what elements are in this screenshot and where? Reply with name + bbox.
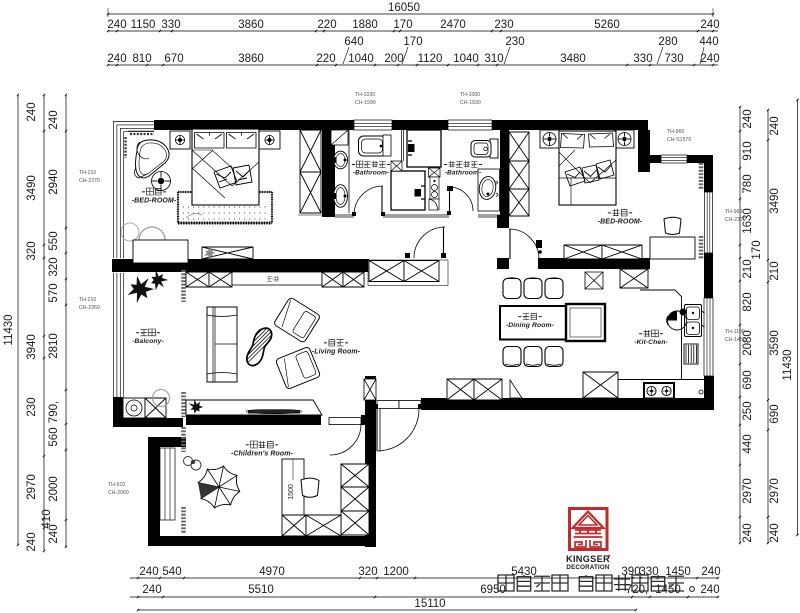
svg-text:1040: 1040 [348, 53, 374, 65]
svg-text:2970: 2970 [26, 474, 38, 500]
svg-text:330: 330 [161, 19, 180, 31]
svg-text:640: 640 [344, 36, 363, 48]
svg-text:440: 440 [742, 434, 754, 453]
svg-text:-Children's Room-: -Children's Room- [231, 451, 294, 458]
svg-text:310: 310 [484, 53, 503, 65]
svg-text:540: 540 [162, 566, 181, 578]
svg-text:16050: 16050 [388, 2, 420, 14]
svg-text:TH-1030: TH-1030 [355, 92, 375, 98]
svg-text:3590: 3590 [769, 330, 781, 356]
svg-text:2470: 2470 [440, 19, 466, 31]
svg-text:1120: 1120 [418, 53, 443, 65]
svg-text:240: 240 [107, 53, 126, 65]
svg-text:690: 690 [742, 370, 754, 389]
svg-text:200: 200 [384, 53, 403, 65]
svg-text:3480: 3480 [560, 53, 586, 65]
svg-text:790,: 790, [48, 401, 60, 423]
svg-text:720,: 720, [626, 584, 648, 596]
svg-text:-Bathroom-: -Bathroom- [353, 170, 390, 177]
svg-text:820: 820 [742, 292, 754, 311]
svg-text:1500: 1500 [288, 484, 295, 500]
svg-text:3860: 3860 [238, 19, 264, 31]
svg-text:1150: 1150 [131, 19, 156, 31]
svg-text:390: 390 [621, 566, 640, 578]
svg-text:240: 240 [700, 584, 719, 596]
svg-text:CH-S1570: CH-S1570 [667, 137, 691, 143]
svg-text:230: 230 [494, 19, 513, 31]
svg-text:3490: 3490 [769, 188, 781, 214]
svg-text:6950: 6950 [480, 584, 506, 596]
svg-text:240: 240 [142, 584, 161, 596]
svg-text:CH-1590: CH-1590 [460, 100, 481, 106]
svg-text:220: 220 [317, 19, 336, 31]
svg-text:4970: 4970 [259, 566, 285, 578]
svg-text:15110: 15110 [414, 598, 445, 610]
svg-text:320: 320 [358, 566, 377, 578]
svg-text:170: 170 [393, 19, 412, 31]
svg-text:KINGSER: KINGSER [566, 554, 610, 564]
svg-text:330: 330 [633, 53, 652, 65]
svg-text:2810: 2810 [48, 333, 60, 359]
svg-text:TH-210: TH-210 [79, 170, 96, 176]
svg-text:320: 320 [26, 241, 38, 260]
svg-text:240: 240 [700, 19, 719, 31]
svg-text:240: 240 [701, 566, 720, 578]
svg-text:5260: 5260 [594, 19, 620, 31]
svg-text:3940: 3940 [26, 334, 38, 360]
svg-text:730: 730 [664, 53, 683, 65]
svg-text:690: 690 [769, 404, 781, 423]
svg-text:2940: 2940 [48, 169, 60, 195]
svg-text:CH-2060: CH-2060 [108, 490, 129, 496]
svg-text:5510: 5510 [248, 584, 274, 596]
svg-text:210: 210 [769, 261, 781, 280]
svg-text:560: 560 [48, 427, 60, 446]
svg-text:250: 250 [742, 401, 754, 420]
svg-text:240: 240 [742, 523, 754, 542]
svg-text:-BED-ROOM-: -BED-ROOM- [132, 198, 177, 205]
svg-text:DECORATION: DECORATION [566, 564, 609, 571]
svg-text:570: 570 [48, 283, 60, 302]
svg-text:TH-210: TH-210 [79, 297, 96, 303]
svg-text:230: 230 [26, 397, 38, 416]
svg-text:-Balcony-: -Balcony- [132, 338, 165, 345]
svg-text:240: 240 [769, 523, 781, 542]
svg-text:240: 240 [139, 566, 158, 578]
svg-text:2970: 2970 [769, 478, 781, 504]
svg-text:240: 240 [769, 116, 781, 135]
svg-text:910: 910 [742, 141, 754, 160]
svg-text:320: 320 [48, 257, 60, 276]
svg-text:CH-1590: CH-1590 [355, 100, 376, 106]
svg-text:11430: 11430 [3, 314, 15, 345]
svg-text:240: 240 [107, 19, 126, 31]
svg-text:240: 240 [48, 110, 60, 129]
svg-text:TH-960: TH-960 [667, 129, 684, 135]
svg-text:240: 240 [742, 109, 754, 128]
svg-text:230: 230 [505, 36, 524, 48]
svg-text:240: 240 [26, 102, 38, 121]
svg-text:1040: 1040 [453, 53, 479, 65]
svg-text:-Kit-Chen-: -Kit-Chen- [634, 339, 668, 346]
svg-text:-BED-ROOM-: -BED-ROOM- [598, 219, 643, 226]
svg-text:3490: 3490 [26, 175, 38, 201]
svg-text:-Bathroom-: -Bathroom- [445, 170, 482, 177]
svg-text:810: 810 [132, 53, 151, 65]
svg-text:11430: 11430 [782, 349, 794, 380]
svg-text:-Living Room-: -Living Room- [312, 349, 361, 356]
svg-text:780: 780 [742, 174, 754, 193]
svg-text:TH-510: TH-510 [108, 482, 125, 488]
svg-text:440: 440 [699, 36, 718, 48]
svg-text:TH-960: TH-960 [725, 209, 742, 215]
svg-text:550: 550 [48, 231, 60, 250]
svg-text:1880: 1880 [352, 19, 378, 31]
svg-text:240: 240 [48, 524, 60, 543]
svg-text:2000: 2000 [48, 476, 60, 502]
svg-text:240: 240 [26, 532, 38, 551]
svg-text:TH-1000: TH-1000 [460, 92, 480, 98]
svg-text:170: 170 [403, 36, 422, 48]
svg-text:-Dining Room-: -Dining Room- [506, 322, 555, 329]
svg-text:170: 170 [751, 240, 763, 259]
svg-text:2970: 2970 [742, 478, 754, 504]
svg-text:1200: 1200 [383, 566, 409, 578]
svg-text:210: 210 [742, 259, 754, 278]
svg-text:CH-2360: CH-2360 [79, 305, 100, 311]
svg-text:220: 220 [316, 53, 335, 65]
svg-text:CH-1450: CH-1450 [725, 337, 746, 343]
svg-text:670: 670 [164, 53, 183, 65]
svg-text:CH-2370: CH-2370 [725, 217, 746, 223]
svg-text:240: 240 [700, 53, 719, 65]
svg-text:280: 280 [658, 36, 677, 48]
svg-text:CH-2370: CH-2370 [79, 178, 100, 184]
svg-text:3860: 3860 [238, 53, 264, 65]
svg-text:TH-1100: TH-1100 [725, 329, 745, 335]
